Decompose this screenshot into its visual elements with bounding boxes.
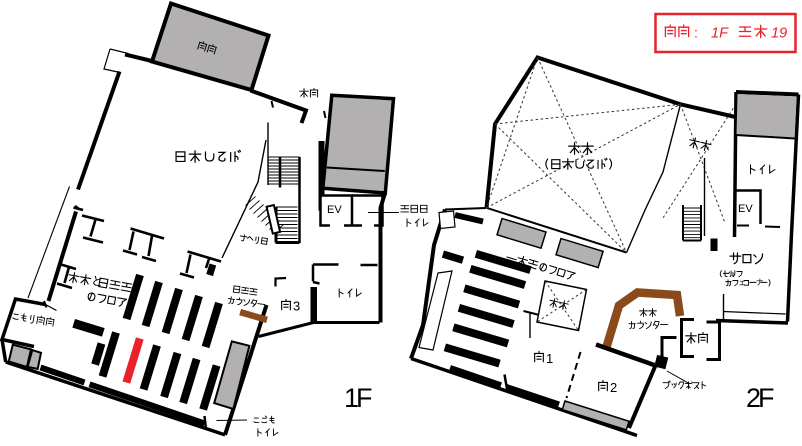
svg-text:3: 3 [293, 299, 300, 314]
svg-text:2F: 2F [746, 383, 774, 413]
svg-text:EV: EV [327, 204, 342, 216]
svg-text:1F: 1F [344, 383, 372, 413]
svg-text:1: 1 [546, 351, 553, 366]
svg-text:19: 19 [771, 26, 787, 42]
svg-text:EV: EV [738, 203, 753, 215]
svg-text::: : [694, 25, 698, 41]
svg-text:ェ: ェ [738, 278, 746, 287]
svg-text:1F: 1F [711, 26, 729, 42]
svg-text:2: 2 [610, 380, 617, 395]
